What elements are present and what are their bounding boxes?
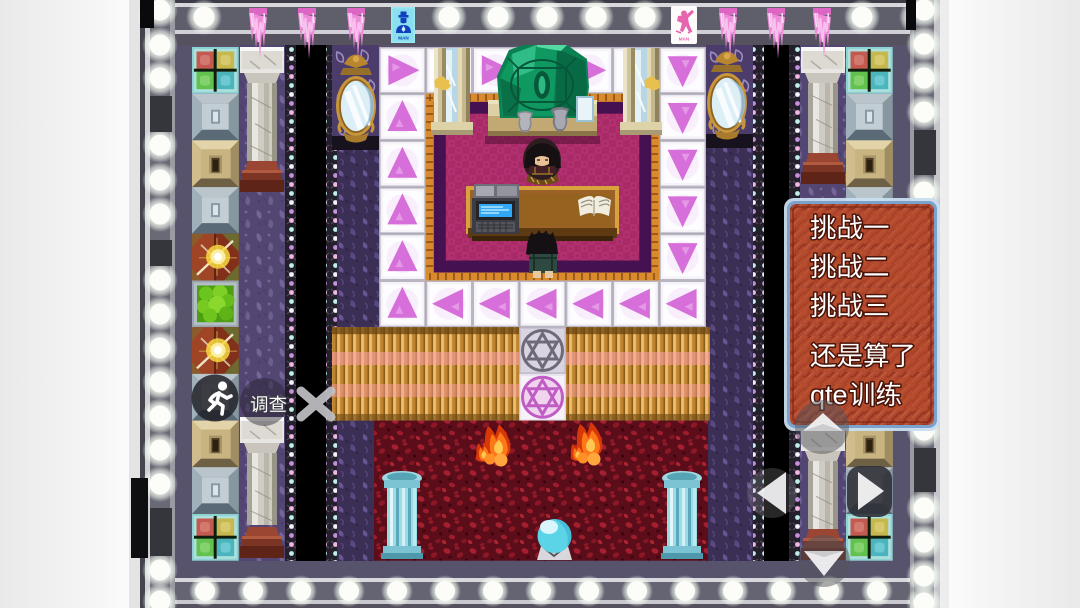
svg-text:MAN: MAN [679,37,690,42]
svg-text:MAN: MAN [398,36,409,41]
